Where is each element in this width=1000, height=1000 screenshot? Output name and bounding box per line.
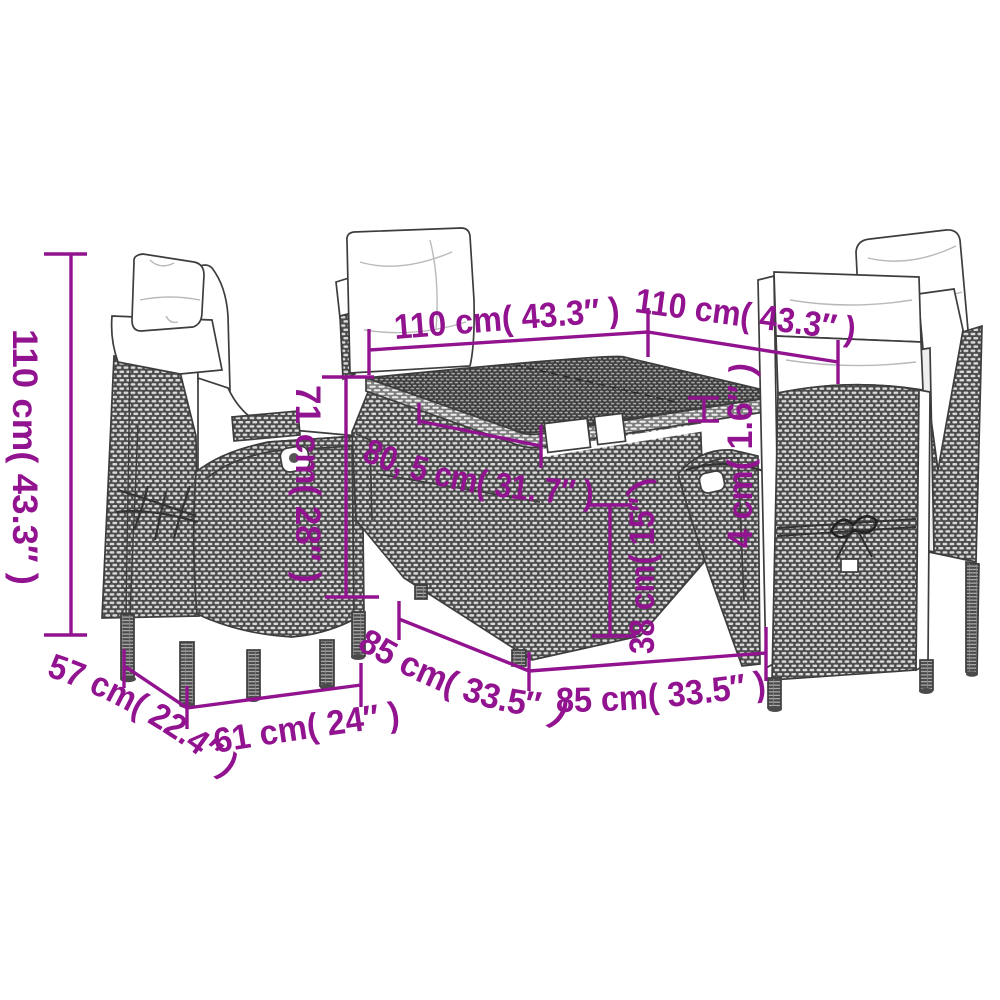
svg-text:71 cm( 28″ ): 71 cm( 28″ ) [288,385,327,583]
svg-text:110 cm( 43.3″ ): 110 cm( 43.3″ ) [5,329,44,585]
svg-text:38 cm( 15″ ): 38 cm( 15″ ) [618,474,662,654]
svg-text:61 cm( 24″ ): 61 cm( 24″ ) [211,695,402,761]
svg-text:57 cm( 22.4″ ): 57 cm( 22.4″ ) [43,647,245,784]
svg-text:85 cm( 33.5″ ): 85 cm( 33.5″ ) [556,664,769,720]
svg-text:4 cm( 1.6″ ): 4 cm( 1.6″ ) [721,360,763,548]
